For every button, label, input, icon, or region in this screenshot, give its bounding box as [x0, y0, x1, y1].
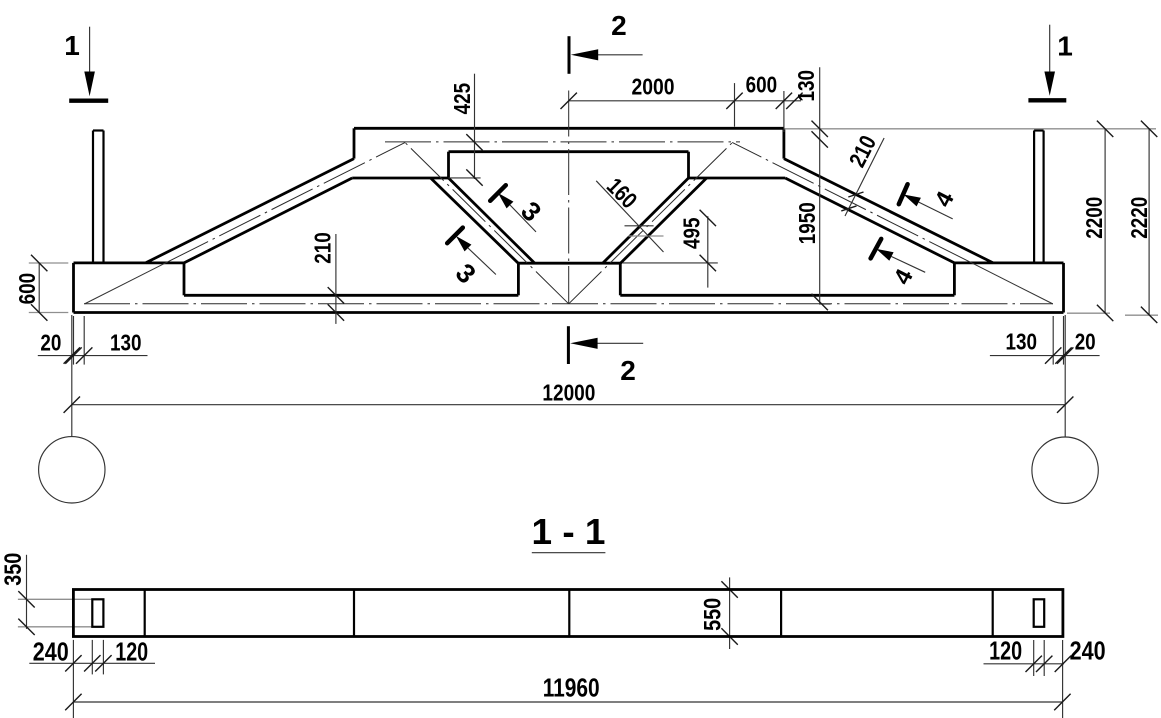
svg-text:130: 130: [110, 330, 142, 356]
svg-text:120: 120: [989, 636, 1022, 666]
svg-text:2000: 2000: [632, 74, 675, 100]
svg-text:2220: 2220: [1126, 197, 1152, 239]
svg-text:1 - 1: 1 - 1: [532, 511, 606, 552]
svg-text:130: 130: [1006, 329, 1038, 355]
svg-text:350: 350: [0, 553, 27, 586]
svg-text:2: 2: [611, 10, 627, 41]
svg-text:600: 600: [14, 273, 40, 305]
svg-text:210: 210: [309, 232, 335, 264]
svg-text:12000: 12000: [542, 380, 595, 406]
svg-text:550: 550: [700, 598, 727, 631]
svg-text:20: 20: [40, 330, 61, 356]
svg-text:495: 495: [679, 217, 705, 249]
svg-text:120: 120: [115, 637, 148, 667]
svg-text:1950: 1950: [794, 202, 820, 244]
svg-text:130: 130: [793, 70, 819, 102]
svg-text:1: 1: [1057, 31, 1073, 62]
svg-text:240: 240: [1070, 636, 1106, 666]
svg-text:20: 20: [1075, 329, 1096, 355]
svg-text:240: 240: [33, 637, 69, 667]
svg-text:2200: 2200: [1081, 197, 1107, 239]
svg-text:11960: 11960: [543, 673, 600, 703]
svg-text:1: 1: [64, 30, 80, 61]
svg-text:600: 600: [746, 71, 778, 97]
svg-text:425: 425: [449, 83, 475, 115]
svg-text:2: 2: [620, 355, 636, 386]
